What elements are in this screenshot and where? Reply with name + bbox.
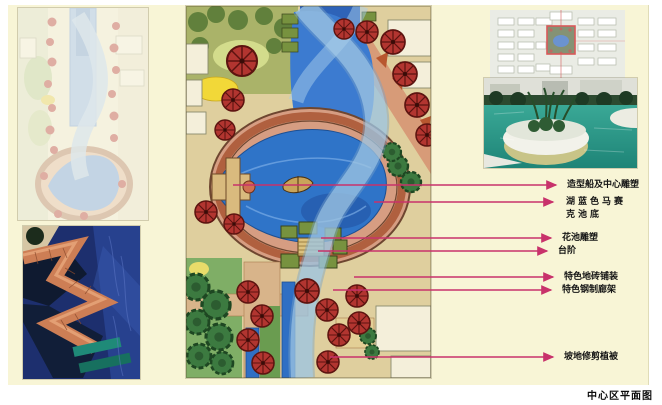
faded-plan-art: [18, 8, 148, 220]
central-masterplan: [186, 6, 431, 378]
planter-photo-art: [484, 78, 637, 168]
annotation-boat-sculpture: 造型船及中心雕塑: [567, 180, 639, 191]
pool-mosaic-photo: [23, 226, 140, 379]
planter-pool-photo: [484, 78, 637, 168]
annotation-flowerbed-sculpture: 花池雕塑: [562, 233, 598, 244]
annotation-steel-pergola: 特色钢制廊架: [562, 285, 616, 296]
annotation-mosaic-bottom: 湖蓝色马赛克池底: [566, 196, 630, 222]
key-plan-art: [490, 10, 625, 78]
site-key-plan: [490, 10, 625, 78]
page-caption: 中心区平面图: [587, 387, 653, 402]
pool-photo-art: [23, 226, 140, 379]
faded-plan-thumbnail: [18, 8, 148, 220]
masterplan-art: [186, 6, 431, 378]
annotation-steps: 台阶: [558, 246, 576, 257]
annotation-slope-vegetation: 坡地修剪植被: [564, 352, 618, 363]
annotation-tile-paving: 特色地砖铺装: [564, 272, 618, 283]
page: 造型船及中心雕塑 湖蓝色马赛克池底 花池雕塑 台阶 特色地砖铺装 特色钢制廊架 …: [0, 0, 662, 405]
